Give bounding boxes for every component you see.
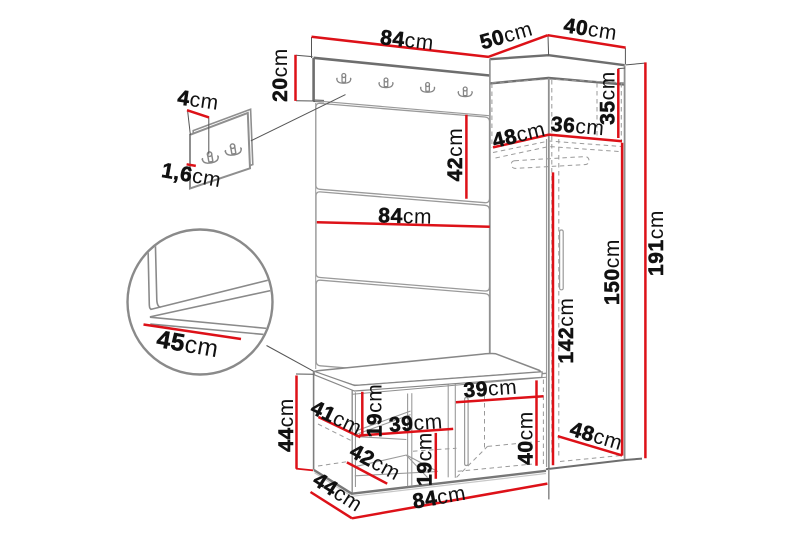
svg-text:20cm: 20cm <box>269 48 292 102</box>
svg-text:19cm: 19cm <box>364 384 387 438</box>
svg-text:142cm: 142cm <box>555 297 578 363</box>
svg-text:39cm: 39cm <box>463 376 518 403</box>
svg-text:19cm: 19cm <box>414 432 437 486</box>
svg-text:35cm: 35cm <box>597 71 620 125</box>
svg-text:84cm: 84cm <box>378 204 432 228</box>
svg-text:40cm: 40cm <box>515 411 538 465</box>
svg-text:44cm: 44cm <box>275 398 298 452</box>
svg-text:191cm: 191cm <box>645 210 668 276</box>
svg-text:42cm: 42cm <box>444 128 467 182</box>
svg-text:150cm: 150cm <box>601 239 624 305</box>
